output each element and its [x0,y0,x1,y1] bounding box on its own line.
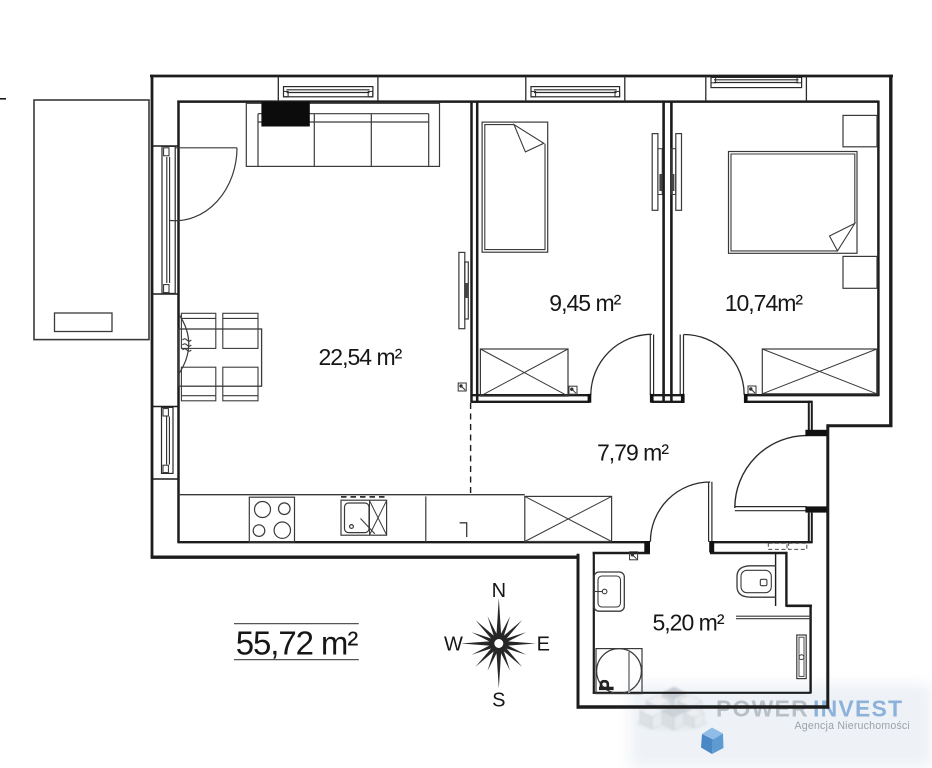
svg-text:5,20 m²: 5,20 m² [653,609,725,635]
svg-text:55,72 m²: 55,72 m² [236,625,359,662]
svg-text:W: W [444,634,463,656]
svg-text:10,74m²: 10,74m² [725,290,804,316]
svg-text:S: S [492,690,505,712]
svg-text:7,79 m²: 7,79 m² [597,439,669,465]
svg-text:E: E [537,634,550,656]
svg-text:22,54 m²: 22,54 m² [319,344,403,370]
svg-text:N: N [492,580,506,602]
svg-text:Agencja Nieruchomości: Agencja Nieruchomości [795,720,911,732]
svg-text:9,45 m²: 9,45 m² [549,290,621,316]
